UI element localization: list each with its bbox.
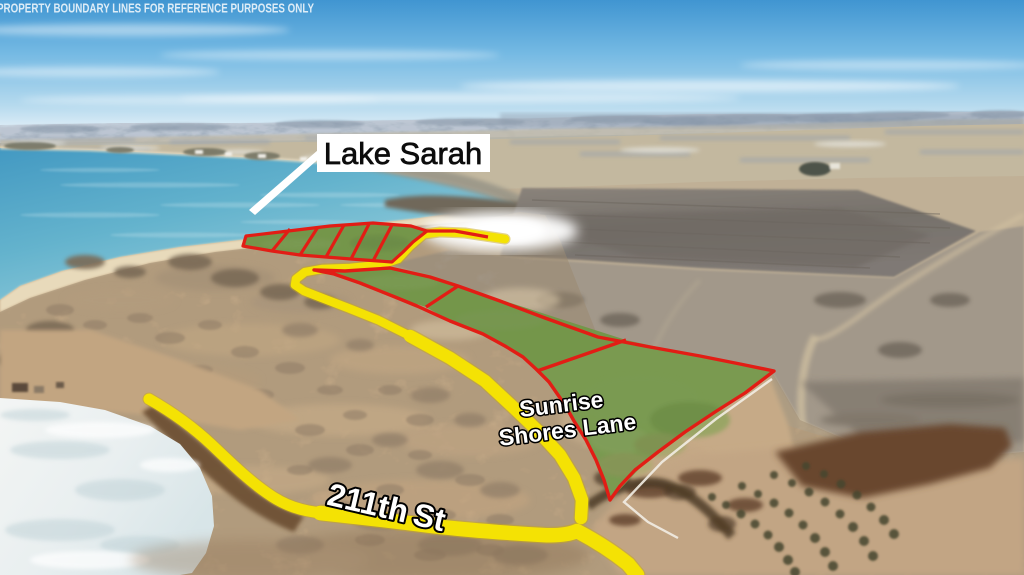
svg-text:Lake Sarah: Lake Sarah — [324, 136, 483, 171]
svg-text:PROPERTY BOUNDARY LINES FOR RE: PROPERTY BOUNDARY LINES FOR REFERENCE PU… — [0, 1, 314, 16]
